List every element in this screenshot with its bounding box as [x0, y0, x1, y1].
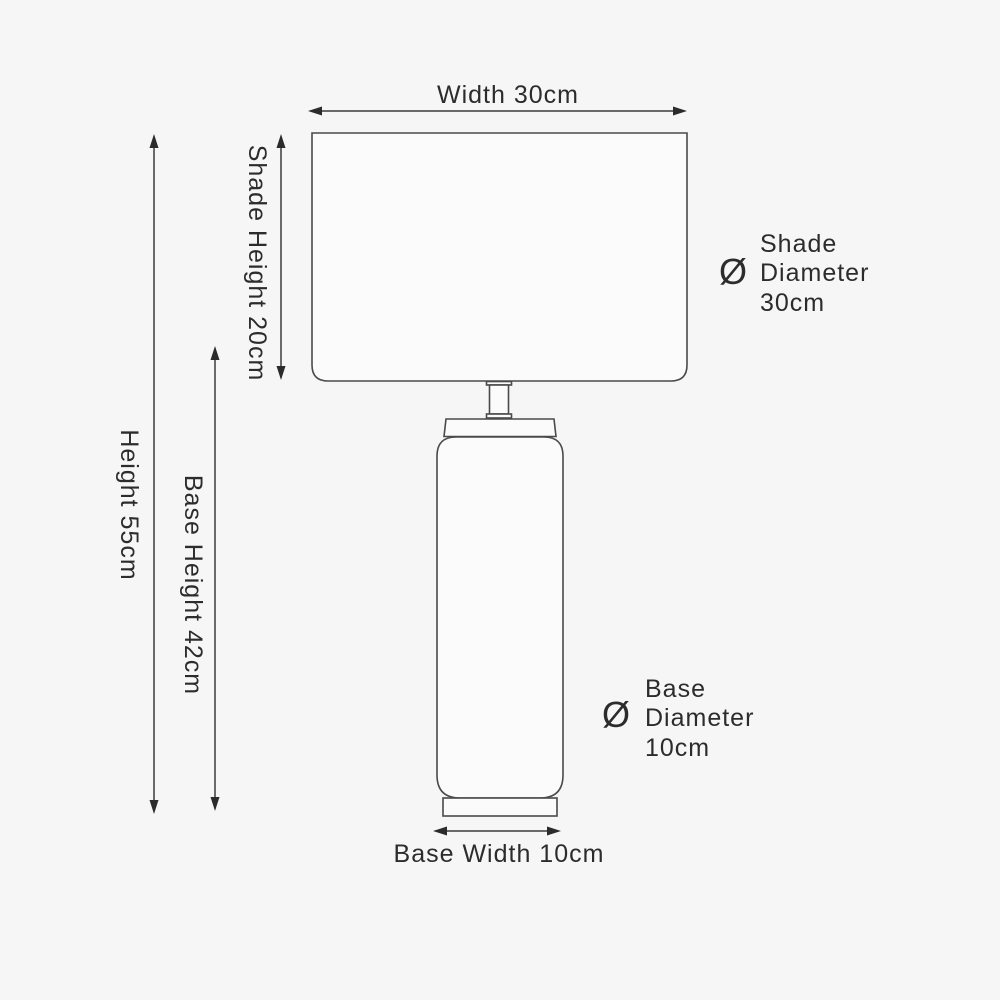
base-height-dimension-label: Base Height 42cm	[179, 475, 207, 695]
shade-diameter-line2: Diameter	[760, 259, 869, 287]
base-foot	[443, 798, 557, 816]
base-diameter-icon: Ø	[602, 694, 630, 735]
width-arrowhead-right	[673, 107, 687, 116]
shade-height-dimension: Shade Height 20cm	[243, 134, 286, 381]
base-width-arrowhead-left	[433, 827, 447, 836]
base-diameter-annotation: Ø Base Diameter 10cm	[602, 675, 754, 762]
shade-diameter-line1: Shade	[760, 230, 837, 258]
height-arrowhead-top	[150, 134, 159, 148]
width-dimension: Width 30cm	[308, 81, 687, 116]
lamp-shade	[312, 133, 687, 381]
base-width-dimension: Base Width 10cm	[394, 827, 605, 869]
base-diameter-line1: Base	[645, 675, 706, 703]
shade-height-arrowhead-bottom	[277, 366, 286, 380]
base-width-dimension-label: Base Width 10cm	[394, 840, 605, 868]
lamp-drawing	[312, 133, 687, 816]
shade-diameter-line3: 30cm	[760, 289, 825, 317]
shade-diameter-icon: Ø	[719, 251, 747, 292]
base-diameter-line3: 10cm	[645, 734, 710, 762]
shade-height-dimension-label: Shade Height 20cm	[243, 145, 271, 382]
base-height-arrowhead-bottom	[211, 797, 220, 811]
width-dimension-label: Width 30cm	[437, 81, 579, 109]
height-dimension-label: Height 55cm	[115, 429, 143, 580]
base-cap	[444, 419, 556, 437]
base-width-arrowhead-right	[547, 827, 561, 836]
width-arrowhead-left	[308, 107, 322, 116]
shade-diameter-annotation: Ø Shade Diameter 30cm	[719, 230, 869, 317]
base-height-dimension: Base Height 42cm	[179, 346, 220, 811]
height-arrowhead-bottom	[150, 800, 159, 814]
height-dimension: Height 55cm	[115, 134, 159, 814]
base-height-arrowhead-top	[211, 346, 220, 360]
lamp-dimension-svg: Width 30cm Shade Height 20cm Height 55cm…	[0, 0, 1000, 1000]
base-diameter-line2: Diameter	[645, 704, 754, 732]
dimension-diagram: Width 30cm Shade Height 20cm Height 55cm…	[0, 0, 1000, 1000]
neck-column	[490, 385, 509, 414]
neck-bottom-flange	[487, 414, 512, 418]
shade-height-arrowhead-top	[277, 134, 286, 148]
base-body	[437, 437, 563, 798]
